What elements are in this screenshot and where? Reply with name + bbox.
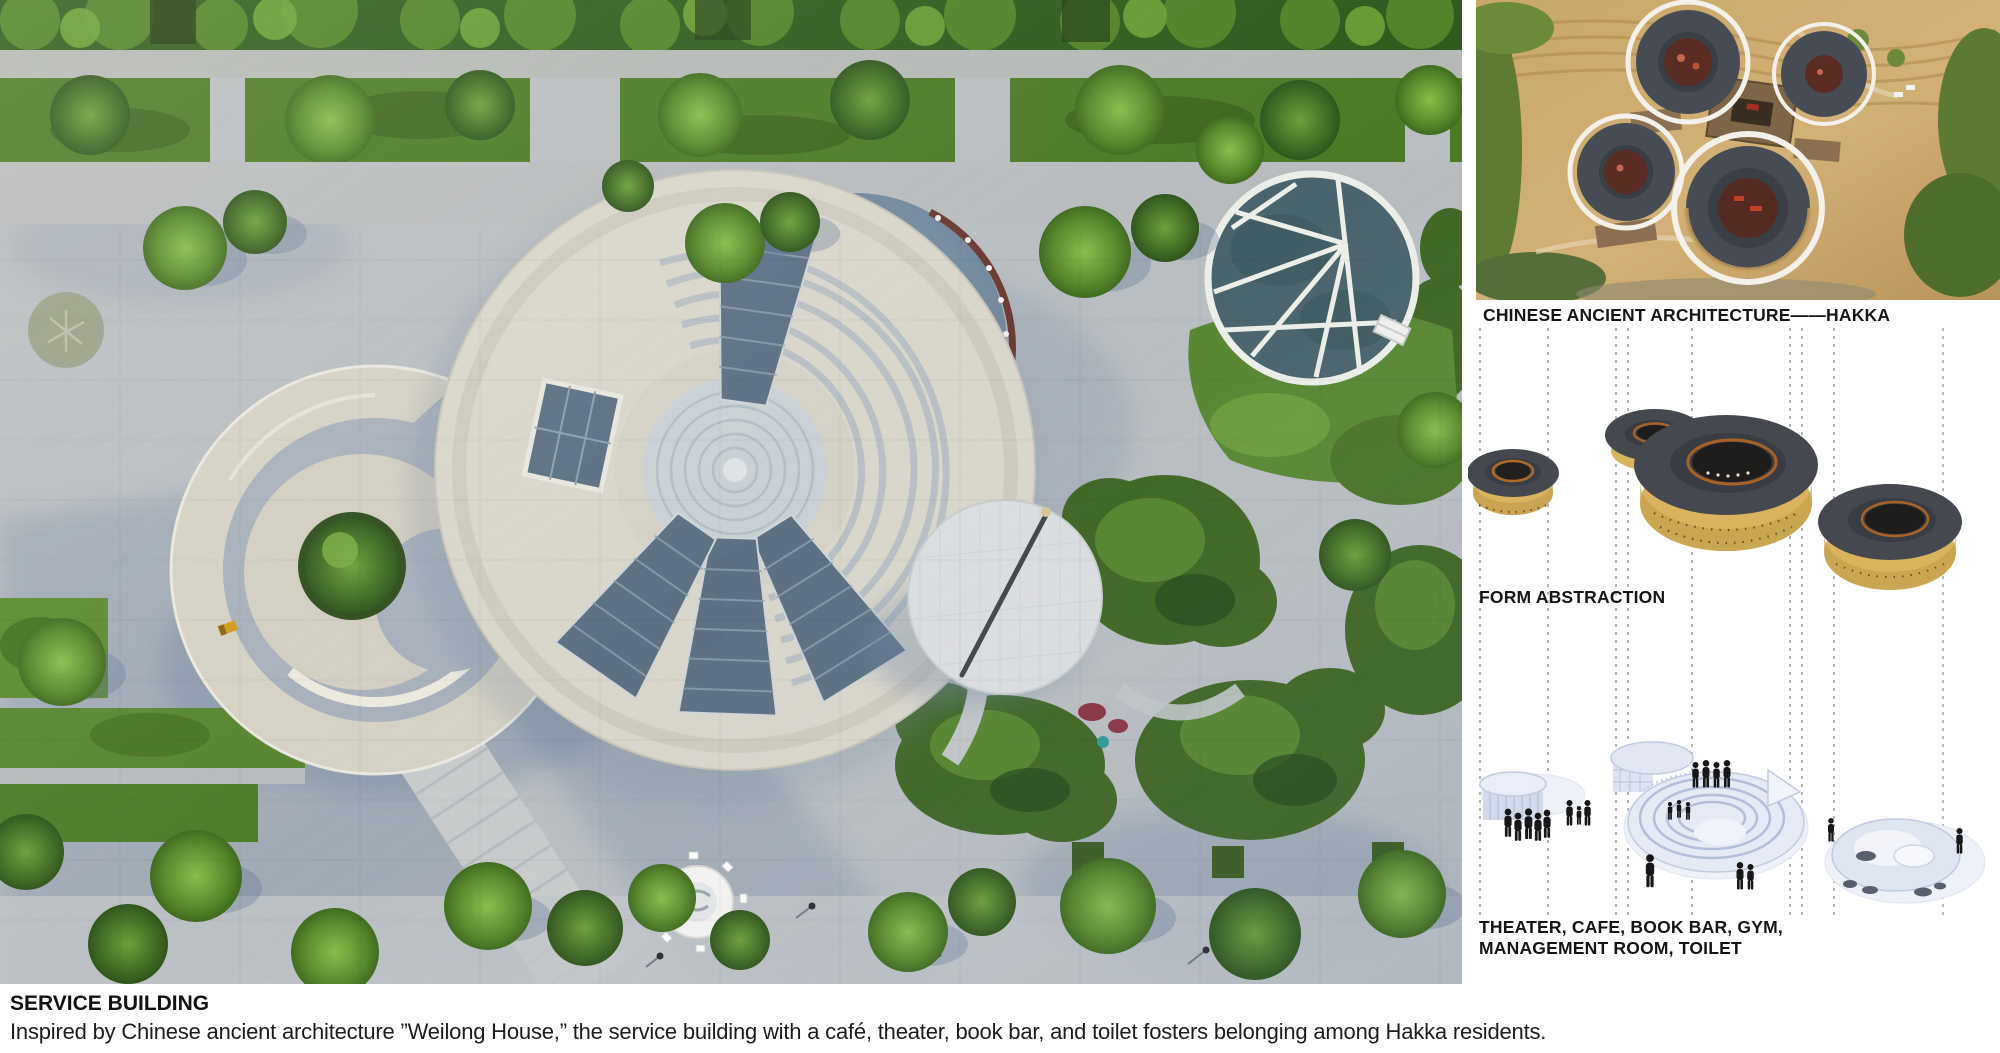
- program-caption-line1: THEATER, CAFE, BOOK BAR, GYM,: [1479, 917, 1783, 938]
- tulou-render-large: [1634, 415, 1818, 551]
- program-caption: THEATER, CAFE, BOOK BAR, GYM, MANAGEMENT…: [1479, 917, 1783, 959]
- page-title: SERVICE BUILDING: [10, 992, 209, 1016]
- page-description: Inspired by Chinese ancient architecture…: [10, 1019, 1546, 1045]
- program-caption-line2: MANAGEMENT ROOM, TOILET: [1479, 938, 1783, 959]
- hakka-reference-photo: [1476, 0, 2000, 300]
- form-abstraction-renders: [1468, 409, 1962, 590]
- form-abstraction-caption: FORM ABSTRACTION: [1479, 587, 1665, 608]
- massing-model: [1480, 742, 1985, 903]
- tulou-render-right: [1818, 484, 1962, 590]
- model-left-pavilion: [1480, 772, 1546, 820]
- tulou-render-small: [1468, 449, 1559, 515]
- site-aerial-graphic: [0, 0, 1462, 984]
- model-ring-building: [1832, 819, 1960, 897]
- hakka-caption: CHINESE ANCIENT ARCHITECTURE——HAKKA: [1483, 305, 1890, 326]
- concept-diagram: [1468, 300, 2000, 960]
- site-aerial-photo: [0, 0, 1462, 984]
- presentation-board: CHINESE ANCIENT ARCHITECTURE——HAKKA FORM…: [0, 0, 2000, 1053]
